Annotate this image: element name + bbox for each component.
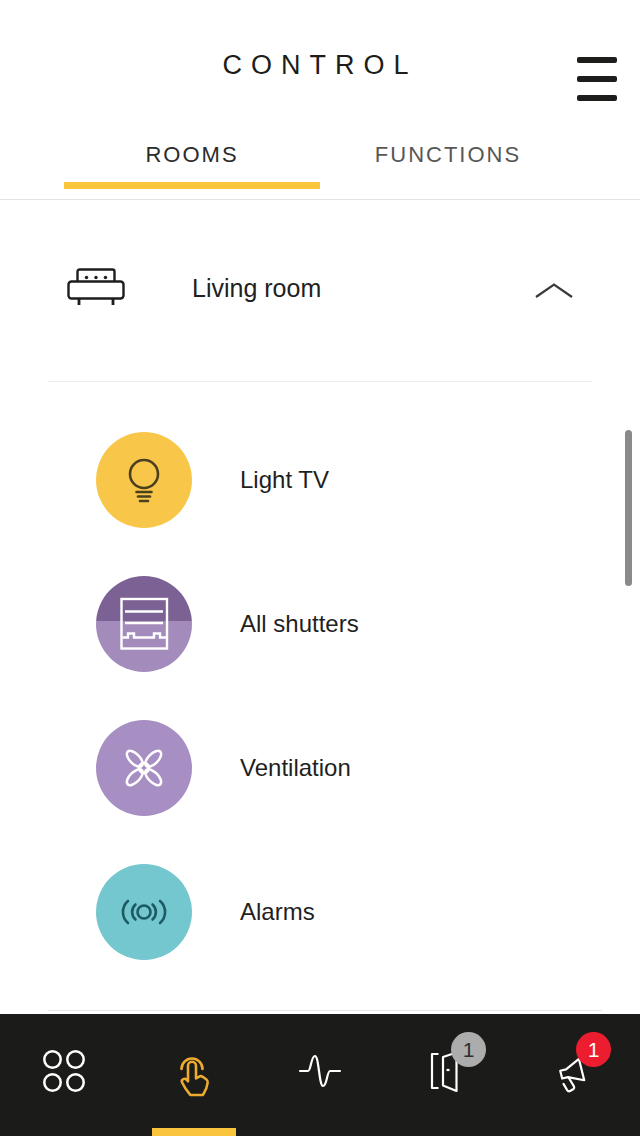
- nav-item-scenes[interactable]: [256, 1014, 384, 1136]
- nav-item-control-active[interactable]: [128, 1014, 256, 1136]
- section-divider: [48, 1010, 602, 1011]
- control-app-screen: CONTROL ROOMS FUNCTIONS Living room: [0, 0, 640, 1136]
- active-tab-indicator: [64, 182, 320, 189]
- tab-functions[interactable]: FUNCTIONS: [320, 129, 576, 199]
- hamburger-bar: [577, 76, 617, 82]
- light-bulb-icon: [96, 432, 192, 528]
- grid-circles-icon: [42, 1049, 86, 1136]
- open-door-icon: 1: [428, 1049, 468, 1136]
- room-divider: [48, 381, 592, 382]
- page-title: CONTROL: [0, 50, 640, 81]
- tab-bar: ROOMS FUNCTIONS: [64, 129, 576, 199]
- nav-item-dashboard[interactable]: [0, 1014, 128, 1136]
- nav-item-alerts[interactable]: 1: [512, 1014, 640, 1136]
- nav-item-doors[interactable]: 1: [384, 1014, 512, 1136]
- device-label: All shutters: [240, 610, 359, 638]
- device-label: Ventilation: [240, 754, 351, 782]
- device-label: Alarms: [240, 898, 315, 926]
- alert-badge: 1: [576, 1032, 611, 1067]
- chevron-up-icon[interactable]: [535, 283, 573, 303]
- active-nav-indicator: [152, 1128, 236, 1136]
- device-label: Light TV: [240, 466, 329, 494]
- room-title: Living room: [192, 272, 321, 305]
- shutter-icon: [96, 576, 192, 672]
- fan-icon: [96, 720, 192, 816]
- hamburger-menu-icon[interactable]: [577, 57, 617, 101]
- touch-hand-icon: [170, 1049, 214, 1136]
- bottom-nav-bar: 1 1: [0, 1014, 640, 1136]
- siren-icon: 1: [553, 1049, 599, 1136]
- pulse-wave-icon: [298, 1049, 342, 1136]
- device-row-ventilation[interactable]: Ventilation: [96, 720, 351, 816]
- hamburger-bar: [577, 95, 617, 101]
- door-badge: 1: [451, 1032, 486, 1067]
- scrollbar-thumb[interactable]: [625, 430, 632, 586]
- header-divider: [0, 199, 640, 200]
- device-row-light-tv[interactable]: Light TV: [96, 432, 329, 528]
- device-row-all-shutters[interactable]: All shutters: [96, 576, 359, 672]
- hamburger-bar: [577, 57, 617, 63]
- alarm-waves-icon: [96, 864, 192, 960]
- device-row-alarms[interactable]: Alarms: [96, 864, 315, 960]
- couch-icon: [67, 268, 125, 312]
